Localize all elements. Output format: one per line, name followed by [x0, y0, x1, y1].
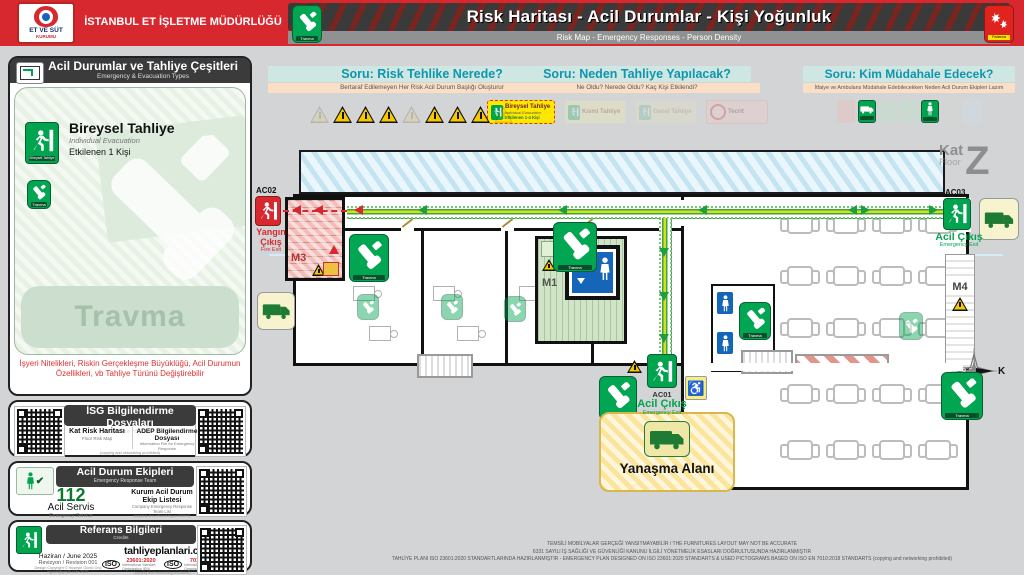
evacuation-panel-header: Acil Durumlar ve Tahliye Çeşitleri Emerg…: [10, 58, 250, 83]
footer-line-1: TEMSİLİ MOBİLYALAR GERÇEĞİ YANSITMAYABİL…: [330, 541, 1014, 549]
footer-line-3: TAHLİYE PLANI ISO 23601:2020 STANDARTLAR…: [330, 556, 1014, 564]
table: [833, 440, 859, 460]
route-arrow-left: [349, 205, 363, 215]
floor-letter: Z: [965, 144, 989, 178]
emergency-exit-icon-ac03: [943, 198, 971, 230]
team-panel-title: Acil Durum Ekipleri: [56, 466, 194, 478]
stair-label-m4: M4: [946, 281, 974, 293]
ac02-labels: Yangın Çıkış Fire Exit: [247, 228, 295, 253]
warning-triangle-icon: [425, 106, 444, 123]
footer-line-2: 6331 SAYILI İŞ SAĞLIĞI VE GÜVENLİĞİ KANU…: [330, 549, 1014, 557]
table: [787, 266, 813, 286]
logo-line2: KURUMU: [19, 34, 73, 39]
table: [787, 440, 813, 460]
affected-count: Etkilenen 1 Kişi: [69, 147, 175, 157]
evacuation-panel-subtitle: Emergency & Evacuation Types: [10, 73, 250, 80]
table: [833, 384, 859, 404]
patlama-icon: Patlama: [984, 5, 1014, 43]
faded-team-icon: [879, 100, 897, 123]
website: tahliyeplanlari.com: [124, 545, 200, 557]
route-arrow-right: [861, 205, 875, 215]
page-subtitle: Risk Map - Emergency Responses - Person …: [557, 33, 742, 42]
question-3-subtitle: İtfaiye ve Ambulans Müdahale Edebilecekk…: [803, 83, 1015, 93]
travma-icon: Travma: [941, 372, 983, 420]
ambulance-icon: [257, 292, 295, 330]
footer-fine-print: TEMSİLİ MOBİLYALAR GERÇEĞİ YANSITMAYABİL…: [330, 541, 1014, 564]
credits-site-block: tahliyeplanlari.com ISO 23601:2020 Inter…: [124, 545, 200, 575]
table: [787, 384, 813, 404]
evacuation-panel-title: Acil Durumlar ve Tahliye Çeşitleri: [10, 60, 250, 73]
header-bar: ET VE SÜT KURUMU İSTANBUL ET İŞLETME MÜD…: [0, 0, 1024, 46]
emergency-name-band: Travma: [21, 286, 239, 348]
question-2-subtitle: Ne Oldu? Nerede Oldu? Kaç Kişi Etkilendi…: [514, 83, 760, 93]
team-panel-subtitle: Emergency Response Team: [56, 478, 194, 484]
warning-triangle-icon: [310, 106, 329, 123]
entrance-steps: [417, 354, 473, 378]
question-2-block: Soru: Neden Tahliye Yapılacak? Ne Oldu? …: [487, 66, 787, 124]
divider: [132, 427, 133, 449]
faded-team-icon: [900, 100, 918, 123]
warning-triangle-icon: [952, 297, 968, 311]
table: [879, 266, 905, 286]
table: [879, 384, 905, 404]
warning-triangle-icon: [356, 106, 375, 123]
floor-plan-icon: [16, 62, 44, 84]
floor-plan: Kat Floor Z M3 AC02 Yangın Çıkış: [253, 136, 1017, 506]
table: [879, 440, 905, 460]
individual-evacuation-exit-icon: Bireysel Tahliye: [25, 122, 59, 164]
qr-code-credits: [198, 526, 246, 574]
glazed-hall-area: [299, 150, 945, 194]
faded-team-icon: [942, 100, 960, 123]
credits-panel-header: Referans Bilgileri Credits: [46, 525, 196, 544]
north-label: K: [998, 366, 1005, 377]
route-arrow-down: [659, 248, 669, 262]
warning-triangle-icon: [402, 106, 421, 123]
faded-isolation-badge: Tecrit: [706, 100, 768, 124]
faded-evacuation-badge: Genel Tahliye: [635, 100, 697, 124]
table: [833, 266, 859, 286]
warning-triangle-icon: [333, 106, 352, 123]
evacuation-types-panel: Acil Durumlar ve Tahliye Çeşitleri Emerg…: [8, 56, 252, 396]
page-subtitle-bar: Risk Map - Emergency Responses - Person …: [288, 31, 1010, 44]
hse-panel-header: İSG Bilgilendirme Dosyaları Information …: [64, 405, 196, 426]
desk: [369, 326, 391, 341]
evacuation-type-text: Bireysel Tahliye Individual Evacuation E…: [69, 120, 175, 157]
credits-panel-subtitle: Credits: [46, 536, 196, 541]
travma-cast-watermark: [86, 133, 246, 298]
question-2-title: Soru: Neden Tahliye Yapılacak?: [523, 66, 751, 82]
fire-exit-icon-ac02: [255, 196, 281, 226]
emergency-phone-sub: Emergency Service: [16, 513, 126, 519]
route-arrow-left: [309, 205, 323, 215]
warning-triangle-icon: [448, 106, 467, 123]
ac01-labels: AC01 Acil Çıkış Emergency Exit: [633, 390, 691, 416]
assembly-area-label: Yanaşma Alanı: [620, 461, 715, 476]
exit-code-ac03: AC03: [945, 188, 965, 197]
emergency-name: Travma: [74, 300, 185, 334]
question-3-title: Soru: Kim Müdahale Edecek?: [803, 66, 1015, 82]
travma-icon: Travma: [553, 222, 597, 272]
evacuation-type-card: Bireysel Tahliye Bireysel Tahliye Indivi…: [14, 87, 246, 355]
emergency-phone-label: Acil Servis: [16, 503, 126, 513]
route-arrow-down: [659, 292, 669, 306]
warning-triangle-icon: [379, 106, 398, 123]
route-arrow-down: [659, 334, 669, 348]
room-wall: [421, 228, 424, 364]
floor-label: Kat Floor Z: [939, 144, 990, 178]
stair-label-m3: M3: [291, 252, 306, 264]
evacuation-note: İşyeri Nitelikleri, Riskin Gerçekleşme B…: [16, 359, 244, 379]
exit-mini-icon: [639, 105, 651, 120]
travma-icon: Travma: [27, 180, 51, 209]
response-team-panel: ✔ Acil Durum Ekipleri Emergency Response…: [8, 461, 252, 516]
female-wc-icon: [717, 332, 733, 354]
credits-panel-title: Referans Bilgileri: [46, 525, 196, 536]
credits-panel: Referans Bilgileri Credits Haziran / Jun…: [8, 520, 252, 572]
exit-sign-icon: [16, 526, 42, 554]
hse-files-panel: İSG Bilgilendirme Dosyaları Information …: [8, 400, 252, 457]
qr-code-floor-risk-map: [15, 407, 64, 456]
emergency-phone-number: 112: [16, 487, 126, 503]
exit-mini-icon: [568, 105, 580, 120]
route-arrow-left: [843, 205, 857, 215]
route-arrow-left: [553, 205, 567, 215]
logo-bull-icon: [34, 6, 58, 27]
fire-risk-icon: [323, 262, 339, 276]
evacuation-badge-row: Bireysel Tahliye Individual Evacuation E…: [487, 100, 787, 124]
hse-item-1: Kat Risk Haritası Floor Risk Map: [64, 428, 130, 441]
exit-code-ac02: AC02: [256, 186, 276, 195]
first-aid-team-icon: [921, 100, 939, 123]
ambulance-icon: [644, 421, 690, 457]
emergency-exit-icon-ac01: [647, 354, 677, 388]
route-arrow-up: [329, 240, 339, 254]
route-arrow-left: [287, 205, 301, 215]
table: [787, 318, 813, 338]
team-panel-header: Acil Durum Ekipleri Emergency Response T…: [56, 466, 194, 487]
hse-note: (copying and networking prohibited): [64, 451, 196, 455]
ac03-labels: Acil Çıkış Emergency Exit: [931, 232, 987, 248]
title-band: Risk Haritası - Acil Durumlar - Kişi Yoğ…: [288, 3, 1010, 31]
etsk-logo: ET VE SÜT KURUMU: [17, 2, 75, 44]
route-arrow-left: [413, 205, 427, 215]
ambulance-team-icon: [858, 100, 876, 123]
iso-badge-23601: ISO 23601:2020 International Standart Or…: [102, 558, 160, 571]
male-wc-icon: [717, 292, 733, 314]
travma-icon: Travma: [349, 234, 389, 282]
prohibition-icon: [710, 104, 726, 120]
faded-team-icon: [963, 100, 981, 123]
evacuation-type-subtitle: Individual Evacuation: [69, 136, 175, 145]
emergency-phone-block: 112 Acil Servis Emergency Service: [16, 487, 126, 519]
desk: [457, 326, 479, 341]
evacuation-type-title: Bireysel Tahliye: [69, 120, 175, 136]
responder-icon-row: [803, 100, 1015, 123]
page-title: Risk Haritası - Acil Durumlar - Kişi Yoğ…: [467, 7, 832, 27]
organization-title: İSTANBUL ET İŞLETME MÜDÜRLÜĞÜ: [79, 5, 287, 41]
table: [833, 318, 859, 338]
credits-note: (copying and networking prohibited): [124, 571, 200, 575]
team-list-block: Kurum Acil Durum Ekip Listesi Company Em…: [128, 489, 196, 518]
qr-code-team-list: [197, 467, 246, 516]
stair-label-m1: M1: [542, 277, 557, 289]
ambulance-docking-area: Yanaşma Alanı: [599, 412, 735, 492]
travma-icon-faded: [899, 312, 923, 340]
travma-icon-faded: [357, 294, 379, 320]
travma-icon-faded: [441, 294, 463, 320]
faded-fire-icon: [837, 100, 855, 123]
travma-icon-faded: [504, 296, 526, 322]
qr-code-adep-file: [196, 407, 245, 456]
table: [925, 440, 951, 460]
route-arrow-left: [693, 205, 707, 215]
route-arrow-right: [929, 205, 943, 215]
hse-item-2: ADEP Bilgilendirme Dosyası Information F…: [134, 428, 200, 451]
hse-panel-title: İSG Bilgilendirme Dosyaları: [64, 405, 196, 429]
travma-icon: Travma: [739, 302, 771, 340]
organization-title-text: İSTANBUL ET İŞLETME MÜDÜRLÜĞÜ: [84, 16, 282, 29]
logo-line1: ET VE SÜT: [19, 27, 73, 34]
question-3-block: Soru: Kim Müdahale Edecek? İtfaiye ve Am…: [803, 66, 1015, 123]
faded-evacuation-badge: Kısmi Tahliye: [564, 100, 626, 124]
travma-icon: Travma: [292, 5, 322, 43]
